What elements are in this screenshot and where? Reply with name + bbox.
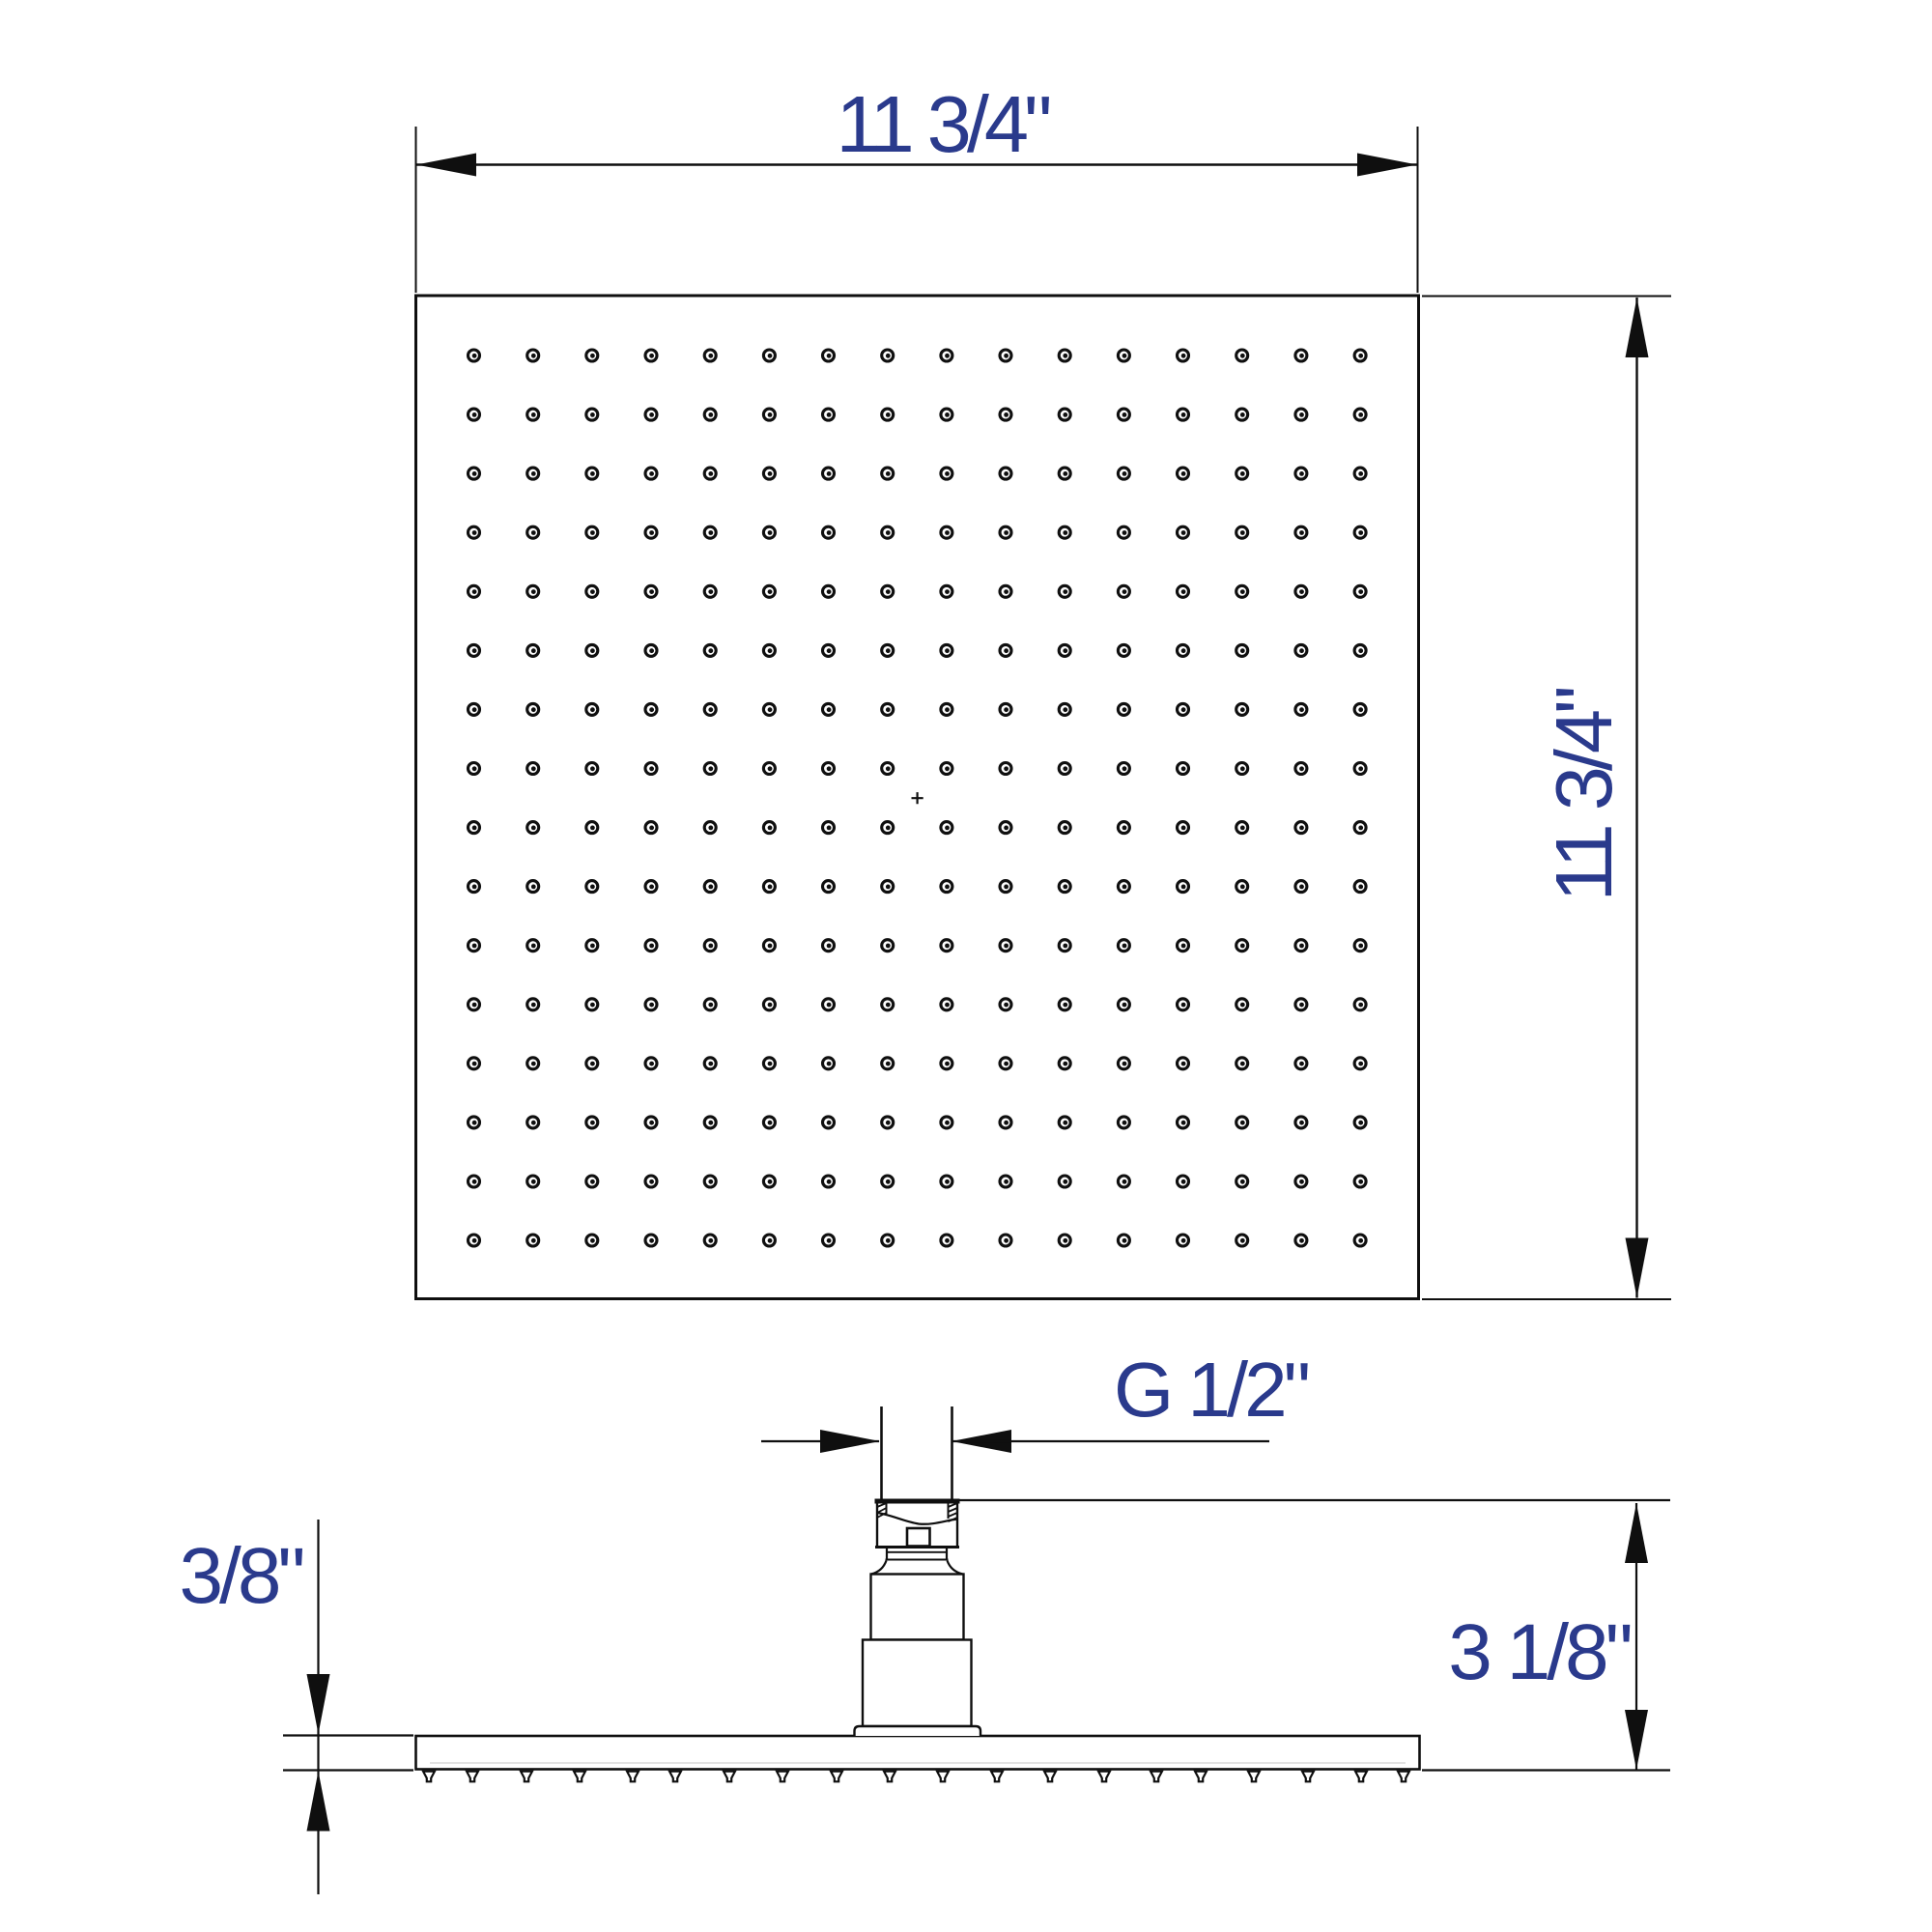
svg-text:3 1/8": 3 1/8" (1448, 1608, 1630, 1696)
svg-text:11 3/4": 11 3/4" (836, 79, 1049, 169)
svg-text:G 1/2": G 1/2" (1114, 1347, 1308, 1433)
svg-text:11 3/4": 11 3/4" (1539, 689, 1629, 902)
svg-text:3/8": 3/8" (179, 1532, 302, 1620)
